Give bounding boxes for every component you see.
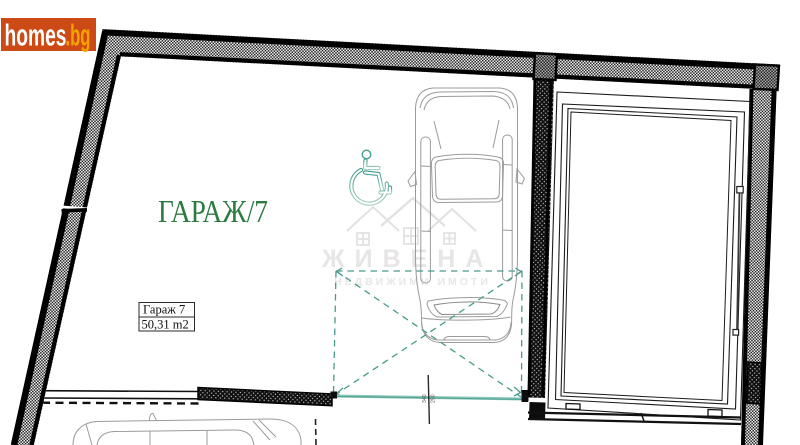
svg-text:250: 250 xyxy=(431,394,437,403)
svg-text:homes: homes xyxy=(5,18,67,53)
svg-text:340: 340 xyxy=(422,394,428,403)
svg-text:ГАРАЖ/7: ГАРАЖ/7 xyxy=(158,193,268,229)
svg-text:50,31 m2: 50,31 m2 xyxy=(142,318,189,332)
svg-text:.bg: .bg xyxy=(66,18,91,53)
svg-text:ЖИВЕНА: ЖИВЕНА xyxy=(321,245,493,273)
svg-text:Гараж 7: Гараж 7 xyxy=(143,303,185,317)
